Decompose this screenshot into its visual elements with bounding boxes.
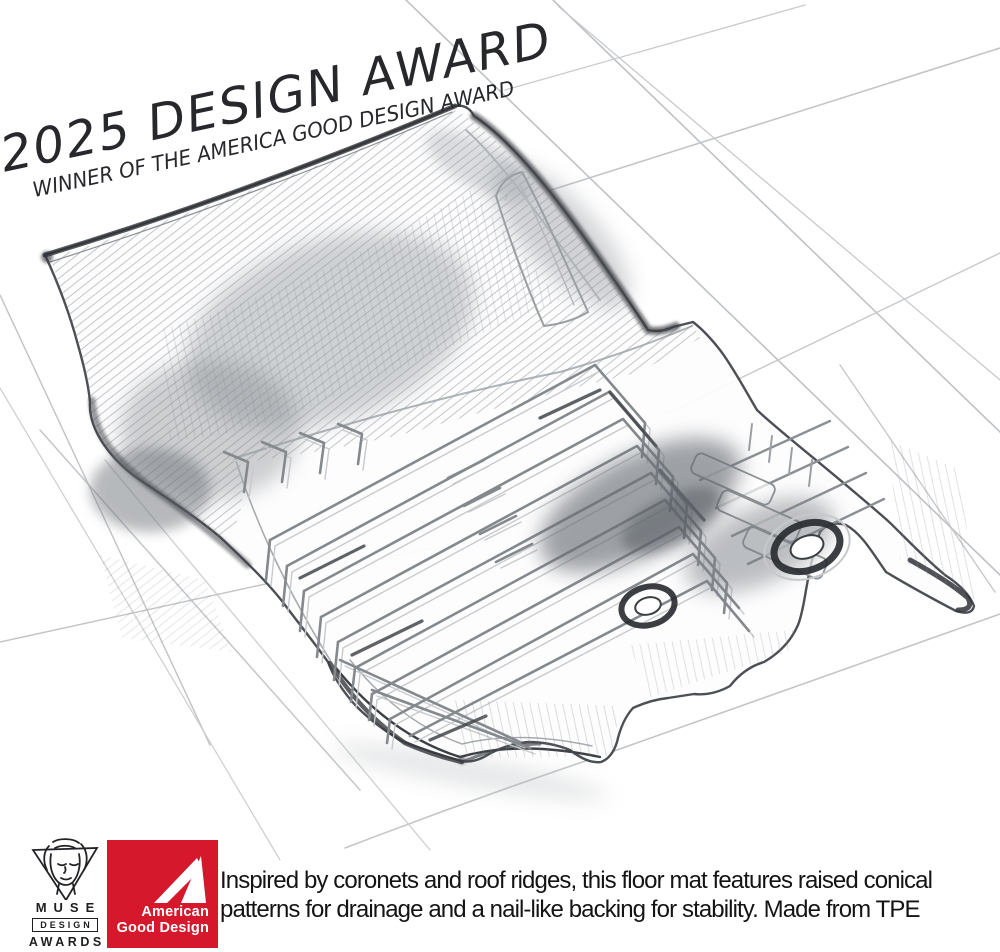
caption-line1: Inspired by coronets and roof ridges, th… (220, 866, 990, 895)
caption-line2: patterns for drainage and a nail-like ba… (220, 895, 990, 924)
muse-logo-name: MUSE (25, 901, 105, 915)
muse-logo-design: DESIGN (32, 918, 98, 932)
american-good-design-logo: American Good Design (107, 840, 218, 948)
agd-logo-line1: American (117, 904, 209, 920)
muse-face-icon (25, 836, 105, 900)
agd-logo-line2: Good Design (117, 920, 209, 936)
product-caption: Inspired by coronets and roof ridges, th… (220, 866, 990, 924)
product-image: 2025 DESIGN AWARD WINNER OF THE AMERICA … (0, 0, 1000, 952)
muse-logo-awards: AWARDS (25, 935, 105, 949)
muse-logo: MUSE DESIGN AWARDS (25, 836, 105, 950)
